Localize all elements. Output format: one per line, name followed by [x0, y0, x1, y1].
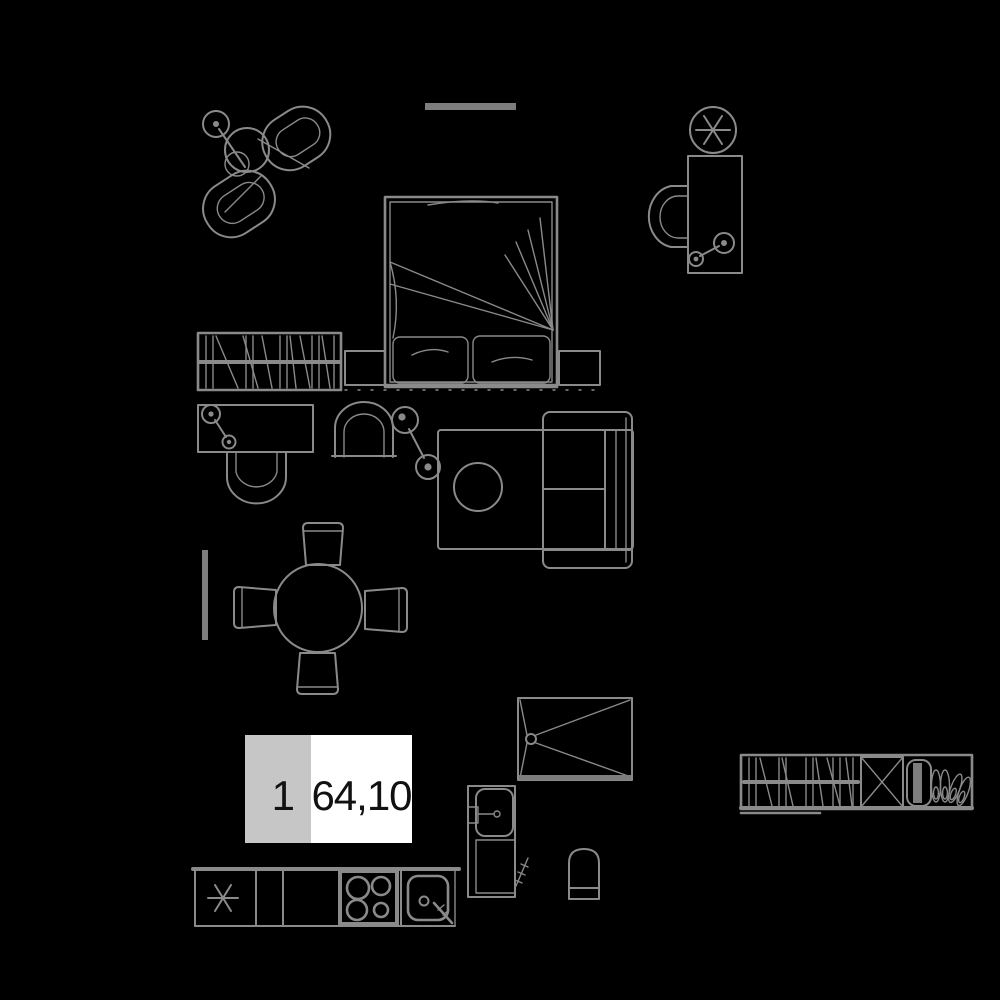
shower-icon	[518, 698, 632, 780]
bed-icon	[345, 197, 603, 390]
washbasin-icon	[468, 786, 528, 897]
hall-wardrobe-icon	[741, 755, 973, 813]
nightstand-icon	[559, 351, 600, 385]
pendant-light-icon	[690, 107, 736, 153]
chair-icon	[227, 452, 286, 503]
shelf-box-icon	[861, 757, 903, 807]
plant-icon	[193, 96, 341, 247]
unit-area-value: 64,10	[311, 772, 411, 820]
unit-label: 1 64,10	[245, 735, 412, 843]
wardrobe-icon	[198, 333, 341, 390]
dining-table-icon	[274, 564, 362, 652]
floor-plan-drawing	[0, 0, 1000, 1000]
chair-icon	[649, 186, 688, 247]
armchair-icon	[332, 402, 396, 457]
window-icon	[425, 103, 516, 110]
desk-icon	[688, 156, 742, 273]
kitchen-sink-icon	[401, 871, 452, 925]
window-icon	[202, 550, 208, 640]
dining-chair-icon	[303, 523, 343, 565]
toilet-icon	[569, 849, 599, 899]
table-lamp-icon	[689, 233, 734, 266]
unit-area-cell: 64,10	[311, 735, 412, 843]
desk-icon	[198, 405, 313, 452]
table-lamp-icon	[202, 405, 236, 449]
mirror-door-icon	[907, 760, 931, 806]
fridge-icon	[208, 885, 238, 911]
coffee-table-icon	[454, 463, 502, 511]
sofa-icon	[543, 412, 632, 568]
floor-plan-canvas: 1 64,10	[0, 0, 1000, 1000]
unit-rooms-value: 1	[272, 772, 295, 820]
dining-chair-icon	[297, 653, 338, 694]
stove-icon	[340, 871, 397, 924]
dining-chair-icon	[365, 588, 407, 632]
unit-rooms-cell: 1	[245, 735, 311, 843]
dining-chair-icon	[234, 587, 276, 628]
floor-lamp-icon	[392, 407, 440, 479]
nightstand-icon	[345, 351, 385, 385]
shoes-icon	[932, 770, 974, 807]
